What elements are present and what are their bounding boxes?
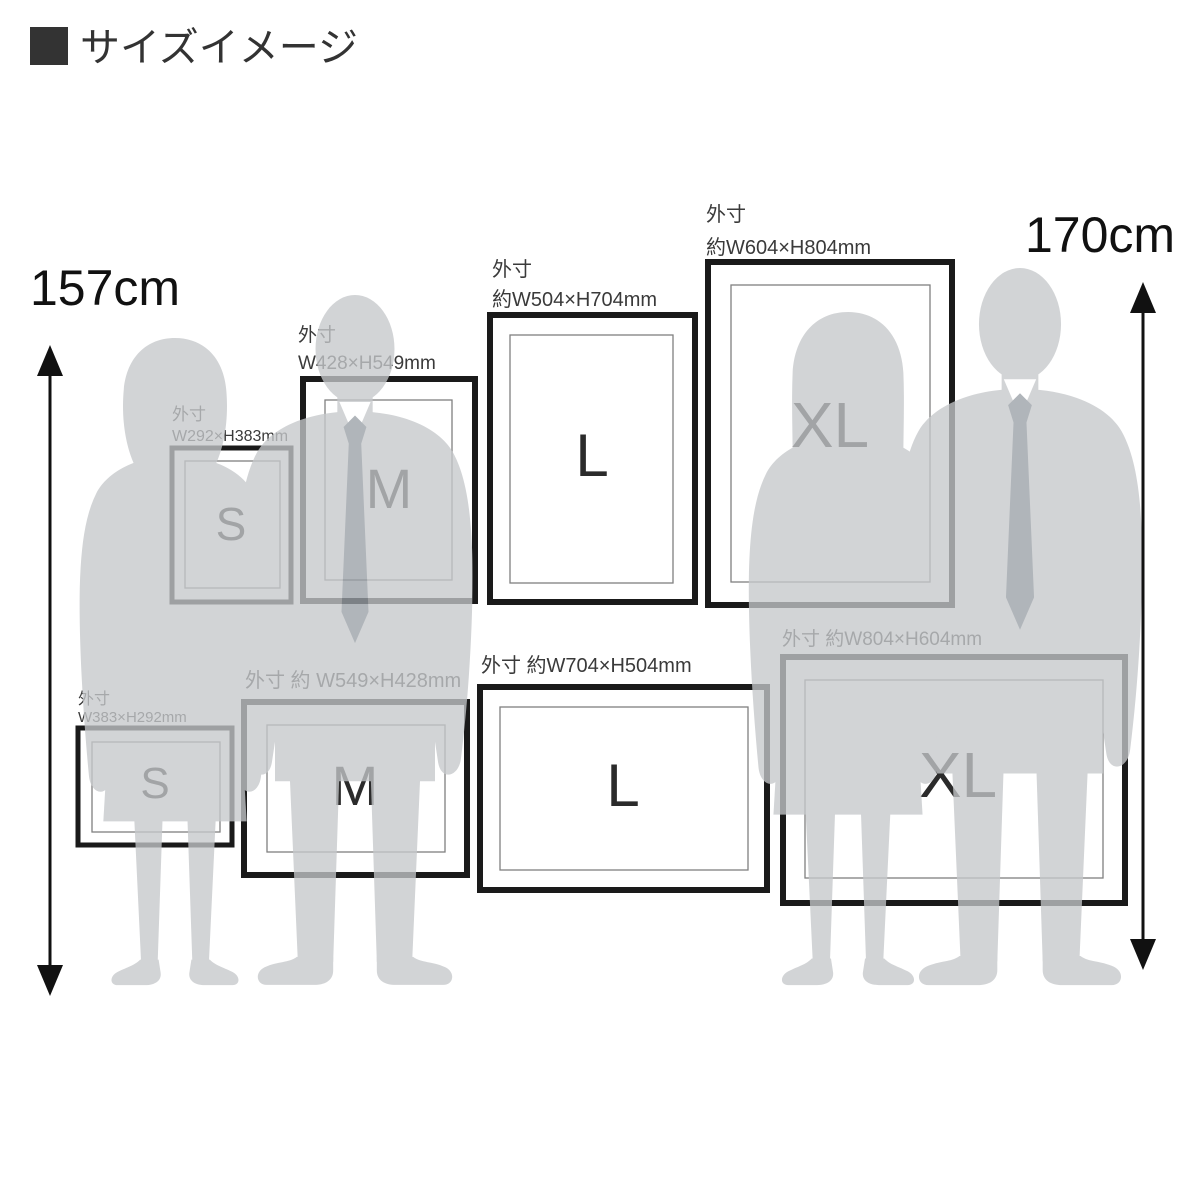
height-marker-right-label: 170cm <box>1025 207 1175 263</box>
frame-portrait-l-dim-label-line2: 約W504×H704mm <box>492 288 657 311</box>
man-right-leg-right <box>1036 763 1088 962</box>
size-diagram: 外寸 W292×H383mm S 外寸 W428×H549mm M 外寸 約W5… <box>0 0 1200 1200</box>
frame-portrait-xl-dim-label-line1: 外寸 <box>706 203 746 226</box>
page-title: サイズイメージ <box>80 26 358 70</box>
size-diagram-page: 外寸 W292×H383mm S 外寸 W428×H549mm M 外寸 約W5… <box>0 0 1200 1200</box>
frame-portrait-l-size-label: L <box>575 422 608 489</box>
frame-landscape-l-size-label: L <box>606 752 639 819</box>
page-heading: サイズイメージ <box>30 26 358 70</box>
woman-right-skirt <box>773 653 922 815</box>
height-marker-left-label: 157cm <box>30 260 180 316</box>
frame-portrait-xl-dim-label-line2: 約W604×H804mm <box>706 236 871 259</box>
frame-landscape-l-dim-label: 外寸 約W704×H504mm <box>481 654 692 677</box>
man-left-leg-right <box>371 771 421 962</box>
title-square-icon <box>30 27 68 65</box>
frame-portrait-l-dim-label-line1: 外寸 <box>492 258 532 281</box>
woman-left-skirt <box>103 666 246 822</box>
man-left-leg-left <box>290 771 340 962</box>
man-right-leg-left <box>952 763 1004 962</box>
